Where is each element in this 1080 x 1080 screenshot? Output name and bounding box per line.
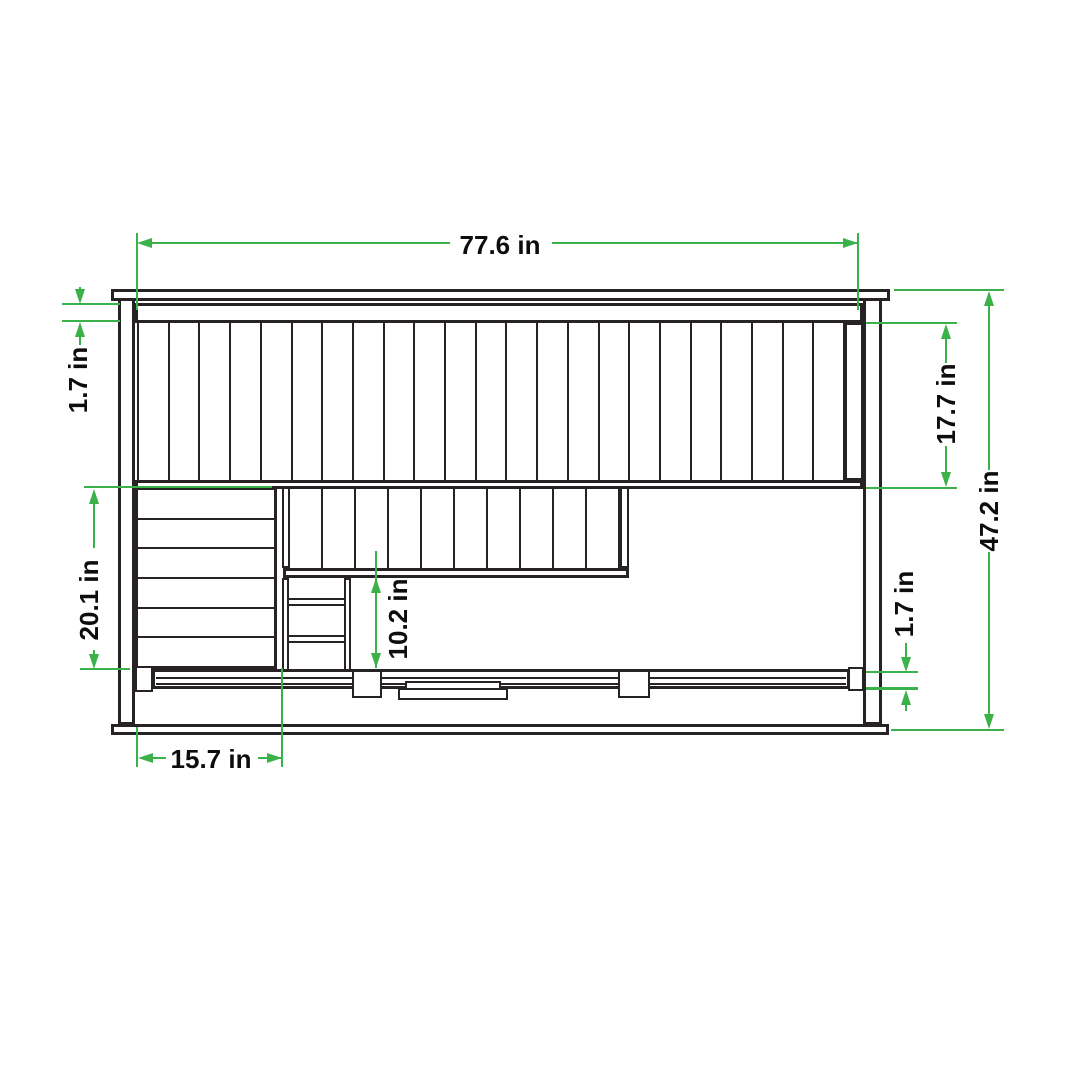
bottom-base-board <box>111 724 889 735</box>
ladder-rung <box>287 598 346 606</box>
lower-left-stile <box>282 487 290 568</box>
dim-arrow <box>89 654 99 669</box>
slat <box>692 323 723 480</box>
slat <box>488 487 521 568</box>
slat <box>630 323 661 480</box>
lower-slat-panel <box>290 487 620 568</box>
slat <box>170 323 201 480</box>
slat <box>446 323 477 480</box>
dim-arrow <box>843 238 858 248</box>
slat <box>354 323 385 480</box>
dim-arrow <box>371 653 381 668</box>
dim-label-clearance: 10.2 in <box>385 579 411 660</box>
dim-height-line <box>988 306 990 470</box>
dim-panel-line <box>93 504 95 548</box>
step-board-bottom <box>398 688 508 700</box>
slat <box>293 323 324 480</box>
slat <box>477 323 508 480</box>
panel-board <box>138 520 274 550</box>
dim-ladder-line <box>152 757 166 759</box>
slat <box>600 323 631 480</box>
slat <box>385 323 416 480</box>
dim-width-line <box>552 242 857 244</box>
dim-height-line <box>988 552 990 715</box>
dim-bedrail-tail <box>905 705 907 711</box>
dim-label-bottom-rail: 1.7 in <box>891 571 917 637</box>
dim-arrow <box>984 714 994 729</box>
dim-arrow <box>89 489 99 504</box>
slat <box>554 487 587 568</box>
panel-board <box>138 490 274 520</box>
dim-arrow <box>137 238 152 248</box>
dim-upper-witness-bottom <box>866 487 957 489</box>
slat <box>139 323 170 480</box>
slat <box>415 323 446 480</box>
slat <box>455 487 488 568</box>
panel-board <box>138 579 274 609</box>
slat <box>290 487 323 568</box>
dim-toprail-line <box>62 303 120 305</box>
dim-width-line <box>140 242 450 244</box>
slat <box>356 487 389 568</box>
dim-label-left-panel: 20.1 in <box>76 560 102 641</box>
panel-board <box>138 638 274 666</box>
dim-arrow <box>901 690 911 705</box>
dim-upper-line <box>945 339 947 363</box>
ladder-rung <box>287 635 346 643</box>
ladder-left-rail <box>282 578 289 672</box>
dim-height-witness-bottom <box>891 729 1004 731</box>
dim-arrow <box>138 753 153 763</box>
slat <box>538 323 569 480</box>
rail-end-block-right <box>848 667 864 691</box>
dim-label-ladder-width: 15.7 in <box>171 746 252 772</box>
slat <box>262 323 293 480</box>
dim-arrow <box>984 291 994 306</box>
dim-panel-witness-bottom <box>80 668 130 670</box>
upper-right-stile <box>845 323 863 480</box>
slat <box>507 323 538 480</box>
ladder-right-rail <box>344 578 351 672</box>
slat <box>521 487 554 568</box>
lower-slat-rail <box>283 568 629 578</box>
dim-arrow <box>371 578 381 593</box>
slat <box>323 487 356 568</box>
right-post <box>863 298 882 725</box>
bed-rail-inner-line <box>156 677 846 679</box>
slat <box>200 323 231 480</box>
slat <box>569 323 600 480</box>
top-rail <box>135 303 863 323</box>
left-post <box>118 298 135 725</box>
slat <box>389 487 422 568</box>
dimensioned-drawing-canvas: 77.6 in 1.7 in 17.7 in 47.2 in 20.1 in 1… <box>0 0 1080 1080</box>
slat <box>323 323 354 480</box>
dim-upper-line <box>945 446 947 473</box>
rail-end-block-left <box>135 666 153 692</box>
slat <box>587 487 620 568</box>
slat <box>422 487 455 568</box>
dim-panel-witness-top <box>84 486 272 488</box>
slat <box>722 323 753 480</box>
top-cap-board <box>111 289 890 301</box>
dim-clearance-line <box>375 551 377 668</box>
dim-arrow <box>901 657 911 672</box>
dim-label-overall-height: 47.2 in <box>976 471 1002 552</box>
dim-bedrail-tail <box>905 643 907 657</box>
lower-right-stile <box>620 487 629 568</box>
bottom-bed-rail <box>152 669 850 689</box>
rail-bracket <box>352 670 382 698</box>
panel-board <box>138 609 274 639</box>
dim-arrow <box>267 753 282 763</box>
dim-arrow <box>941 472 951 487</box>
slat <box>753 323 784 480</box>
dim-toprail-tail <box>79 337 81 345</box>
panel-board <box>138 549 274 579</box>
dim-arrow <box>75 322 85 337</box>
dim-label-upper-panel: 17.7 in <box>933 364 959 445</box>
slat <box>784 323 815 480</box>
slat <box>661 323 692 480</box>
dim-toprail-line <box>62 320 120 322</box>
left-board-panel <box>135 487 277 669</box>
rail-bracket <box>618 670 650 698</box>
slat <box>814 323 845 480</box>
dim-label-top-rail: 1.7 in <box>65 347 91 413</box>
dim-arrow <box>75 289 85 304</box>
bed-rail-inner-line <box>156 683 846 685</box>
dim-label-overall-width: 77.6 in <box>460 232 541 258</box>
dim-arrow <box>941 324 951 339</box>
slat <box>231 323 262 480</box>
upper-slat-panel <box>137 323 845 480</box>
